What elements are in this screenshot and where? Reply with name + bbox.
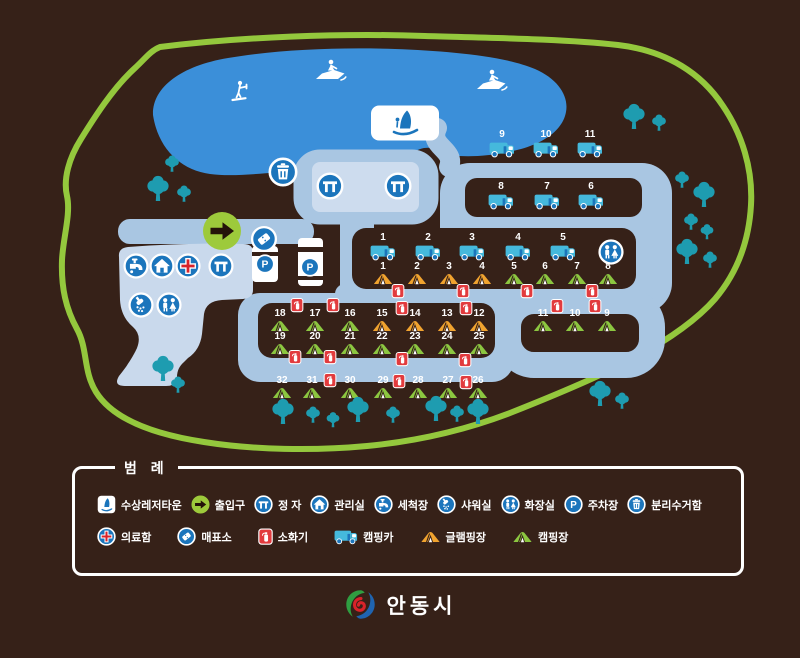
fire-extinguisher-icon bbox=[551, 300, 563, 313]
city-name: 안동시 bbox=[387, 590, 457, 620]
legend-title: 범 례 bbox=[115, 458, 178, 478]
fire-extinguisher-icon bbox=[289, 351, 301, 364]
legend-label: 샤워실 bbox=[461, 497, 491, 513]
medical-cross-icon bbox=[97, 527, 116, 546]
fire-extinguisher-icon bbox=[324, 374, 336, 387]
site-number: 14 bbox=[409, 308, 421, 319]
site-number: 8 bbox=[498, 181, 504, 192]
legend-row-2: 의료함 매표소 소화기 캠핑카 글램핑장 캠핑장 bbox=[97, 527, 741, 546]
site-number: 1 bbox=[380, 261, 386, 272]
fire-extinguisher-icon bbox=[258, 528, 273, 545]
site-number: 19 bbox=[274, 331, 286, 342]
legend-label: 화장실 bbox=[525, 497, 555, 513]
site-number: 11 bbox=[585, 129, 596, 140]
ticket-icon bbox=[177, 527, 196, 546]
fire-extinguisher-icon bbox=[460, 376, 472, 389]
camping-car-icon bbox=[334, 528, 358, 545]
legend-label: 캠핑장 bbox=[538, 529, 568, 545]
legend-item-toilet: 화장실 bbox=[501, 495, 555, 514]
site-number: 9 bbox=[604, 308, 610, 319]
site-number: 27 bbox=[442, 375, 454, 386]
water-leisure-town-icon bbox=[371, 106, 439, 141]
legend-item-washing: 세척장 bbox=[374, 495, 428, 514]
site-number: 2 bbox=[414, 261, 420, 272]
site-number: 10 bbox=[569, 308, 581, 319]
entrance-arrow-icon bbox=[191, 495, 210, 514]
fire-extinguisher-icon bbox=[393, 375, 405, 388]
site-block-1-8 bbox=[352, 228, 636, 289]
city-logo-footer: 안동시 bbox=[0, 588, 800, 621]
fire-extinguisher-icon bbox=[589, 300, 601, 313]
faucet-icon bbox=[374, 495, 393, 514]
legend-item-glamping: 글램핑장 bbox=[420, 529, 486, 545]
site-number: 7 bbox=[574, 261, 580, 272]
fire-extinguisher-icon bbox=[521, 285, 533, 298]
site-number: 31 bbox=[306, 375, 318, 386]
entrance-arrow-icon bbox=[203, 212, 241, 250]
trash-bin-icon bbox=[627, 495, 646, 514]
fire-extinguisher-icon bbox=[324, 351, 336, 364]
toilet-icon bbox=[600, 241, 623, 264]
legend-label: 의료함 bbox=[121, 529, 151, 545]
site-number: 25 bbox=[473, 331, 485, 342]
site-number: 22 bbox=[376, 331, 388, 342]
water-leisure-town-icon bbox=[97, 495, 116, 514]
fire-extinguisher-icon bbox=[457, 285, 469, 298]
legend-label: 관리실 bbox=[334, 497, 364, 513]
site-number: 16 bbox=[344, 308, 356, 319]
site-number: 13 bbox=[441, 308, 453, 319]
shower-icon bbox=[437, 495, 456, 514]
legend-box: 범 례 수상레저타운 출입구 정 자 관리실 세척장 샤워실 화장실 bbox=[72, 466, 744, 576]
site-number: 29 bbox=[377, 375, 389, 386]
site-number: 4 bbox=[479, 261, 485, 272]
legend-item-camping: 캠핑장 bbox=[512, 529, 568, 545]
site-number: 10 bbox=[540, 129, 552, 140]
site-number: 4 bbox=[515, 232, 521, 243]
trash-icon bbox=[270, 159, 296, 185]
camping-tent-icon bbox=[512, 530, 533, 544]
legend-item-camping-car: 캠핑카 bbox=[334, 528, 393, 545]
glamping-tent-icon bbox=[420, 530, 441, 544]
fire-extinguisher-icon bbox=[459, 354, 471, 367]
legend-label: 소화기 bbox=[278, 529, 308, 545]
legend-label: 수상레저타운 bbox=[121, 497, 182, 513]
site-number: 5 bbox=[560, 232, 566, 243]
legend-item-parking: 주차장 bbox=[564, 495, 618, 514]
fire-extinguisher-icon bbox=[586, 285, 598, 298]
site-number: 7 bbox=[544, 181, 550, 192]
legend-item-pavilion: 정 자 bbox=[254, 495, 301, 514]
parking-icon bbox=[564, 495, 583, 514]
parking-icon bbox=[301, 258, 319, 276]
site-number: 20 bbox=[309, 331, 321, 342]
legend-item-entrance: 출입구 bbox=[191, 495, 245, 514]
pavilion-icon bbox=[386, 174, 411, 199]
site-number: 24 bbox=[441, 331, 453, 342]
legend-label: 글램핑장 bbox=[446, 529, 486, 545]
site-number: 15 bbox=[376, 308, 388, 319]
legend-label: 분리수거함 bbox=[651, 497, 702, 513]
toilet-icon bbox=[501, 495, 520, 514]
legend-label: 주차장 bbox=[588, 497, 618, 513]
medical-icon bbox=[177, 255, 200, 278]
legend-label: 캠핑카 bbox=[363, 529, 393, 545]
fire-extinguisher-icon bbox=[396, 302, 408, 315]
site-number: 6 bbox=[542, 261, 548, 272]
site-number: 2 bbox=[425, 232, 431, 243]
site-number: 3 bbox=[469, 232, 475, 243]
fire-extinguisher-icon bbox=[396, 353, 408, 366]
fire-extinguisher-icon bbox=[327, 299, 339, 312]
legend-item-medical: 의료함 bbox=[97, 527, 151, 546]
legend-item-recycling: 분리수거함 bbox=[627, 495, 702, 514]
legend-label: 세척장 bbox=[398, 497, 428, 513]
house-icon bbox=[151, 255, 174, 278]
legend-row-1: 수상레저타운 출입구 정 자 관리실 세척장 샤워실 화장실 주차장 bbox=[97, 495, 741, 514]
site-number: 8 bbox=[605, 261, 611, 272]
site-number: 1 bbox=[380, 232, 386, 243]
legend-label: 정 자 bbox=[278, 497, 301, 513]
ticket-icon bbox=[252, 227, 276, 251]
fire-extinguisher-icon bbox=[392, 285, 404, 298]
pavilion-icon bbox=[210, 255, 233, 278]
pavilion-icon bbox=[318, 174, 343, 199]
legend-item-water-leisure-town: 수상레저타운 bbox=[97, 495, 182, 514]
site-number: 6 bbox=[588, 181, 594, 192]
campground-map-page: P bbox=[0, 0, 800, 658]
legend-label: 매표소 bbox=[201, 529, 231, 545]
toilet-icon bbox=[158, 294, 181, 317]
site-number: 18 bbox=[274, 308, 286, 319]
legend-item-extinguisher: 소화기 bbox=[258, 528, 308, 545]
legend-item-office: 관리실 bbox=[310, 495, 364, 514]
andong-city-logo bbox=[344, 588, 377, 621]
house-icon bbox=[310, 495, 329, 514]
site-number: 9 bbox=[499, 129, 505, 140]
pavilion-icon bbox=[254, 495, 273, 514]
site-number: 17 bbox=[309, 308, 321, 319]
site-number: 23 bbox=[409, 331, 421, 342]
site-number: 30 bbox=[344, 375, 356, 386]
legend-label: 출입구 bbox=[215, 497, 245, 513]
legend-item-ticket: 매표소 bbox=[177, 527, 231, 546]
faucet-icon bbox=[125, 255, 148, 278]
legend-item-shower: 샤워실 bbox=[437, 495, 491, 514]
site-number: 26 bbox=[472, 375, 484, 386]
parking-icon bbox=[256, 255, 274, 273]
shower-icon bbox=[130, 294, 153, 317]
site-number: 3 bbox=[446, 261, 452, 272]
site-number: 11 bbox=[538, 308, 549, 319]
fire-extinguisher-icon bbox=[291, 299, 303, 312]
fire-extinguisher-icon bbox=[460, 302, 472, 315]
site-number: 28 bbox=[412, 375, 424, 386]
site-number: 12 bbox=[473, 308, 485, 319]
site-number: 5 bbox=[511, 261, 517, 272]
site-number: 32 bbox=[276, 375, 288, 386]
site-number: 21 bbox=[344, 331, 356, 342]
